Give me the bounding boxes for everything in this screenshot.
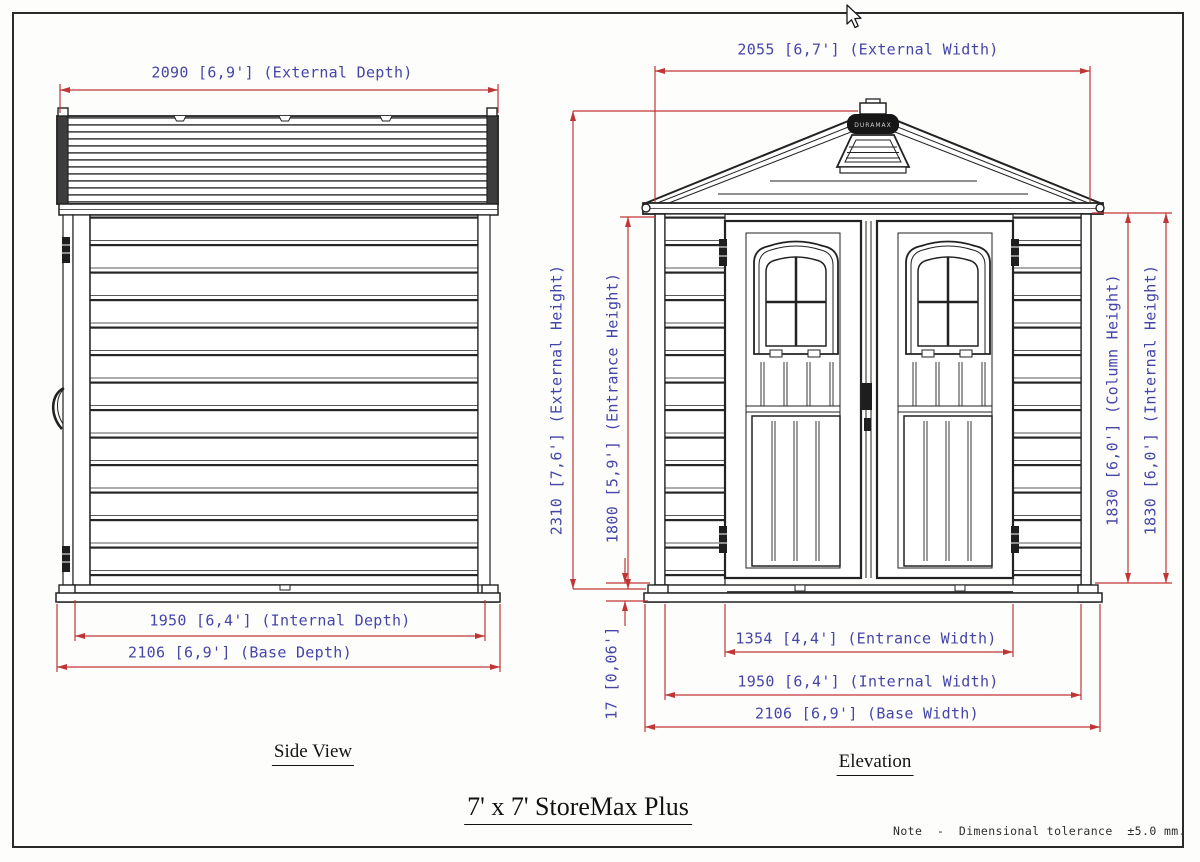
tolerance-note: Note - Dimensional tolerance ±5.0 mm. bbox=[893, 824, 1181, 838]
dim-floor-height: 17 [0,06'] bbox=[605, 626, 620, 719]
dim-internal-width: 1950 [6,4'] (Internal Width) bbox=[737, 675, 998, 690]
dim-entrance-width: 1354 [4,4'] (Entrance Width) bbox=[735, 632, 996, 647]
roof-brand-label: DURAMAX bbox=[854, 122, 891, 129]
left-door bbox=[725, 221, 861, 578]
shed-linework: DURAMAX bbox=[0, 0, 1200, 862]
right-door bbox=[877, 221, 1013, 578]
drawing-sheet: DURAMAX bbox=[0, 0, 1200, 862]
dim-external-depth: 2090 [6,9'] (External Depth) bbox=[151, 66, 412, 81]
dim-external-width: 2055 [6,7'] (External Width) bbox=[737, 43, 998, 58]
dim-column-height: 1830 [6,0'] (Column Height) bbox=[1106, 274, 1121, 526]
dim-external-height: 2310 [7,6'] (External Height) bbox=[550, 265, 565, 536]
dim-internal-depth: 1950 [6,4'] (Internal Depth) bbox=[149, 614, 410, 629]
cursor-icon bbox=[845, 4, 869, 32]
door-latch bbox=[862, 383, 872, 410]
dim-base-depth: 2106 [6,9'] (Base Depth) bbox=[128, 646, 352, 661]
caption-side-view: Side View bbox=[272, 741, 354, 766]
dim-entrance-height: 1800 [5,9'] (Entrance Height) bbox=[606, 273, 621, 544]
caption-elevation: Elevation bbox=[837, 751, 914, 776]
dim-internal-height: 1830 [6,0'] (Internal Height) bbox=[1144, 265, 1159, 536]
side-view-drawing bbox=[53, 108, 500, 602]
dim-base-width: 2106 [6,9'] (Base Width) bbox=[755, 707, 979, 722]
drawing-title: 7' x 7' StoreMax Plus bbox=[464, 792, 692, 825]
elevation-drawing: DURAMAX bbox=[642, 99, 1104, 602]
